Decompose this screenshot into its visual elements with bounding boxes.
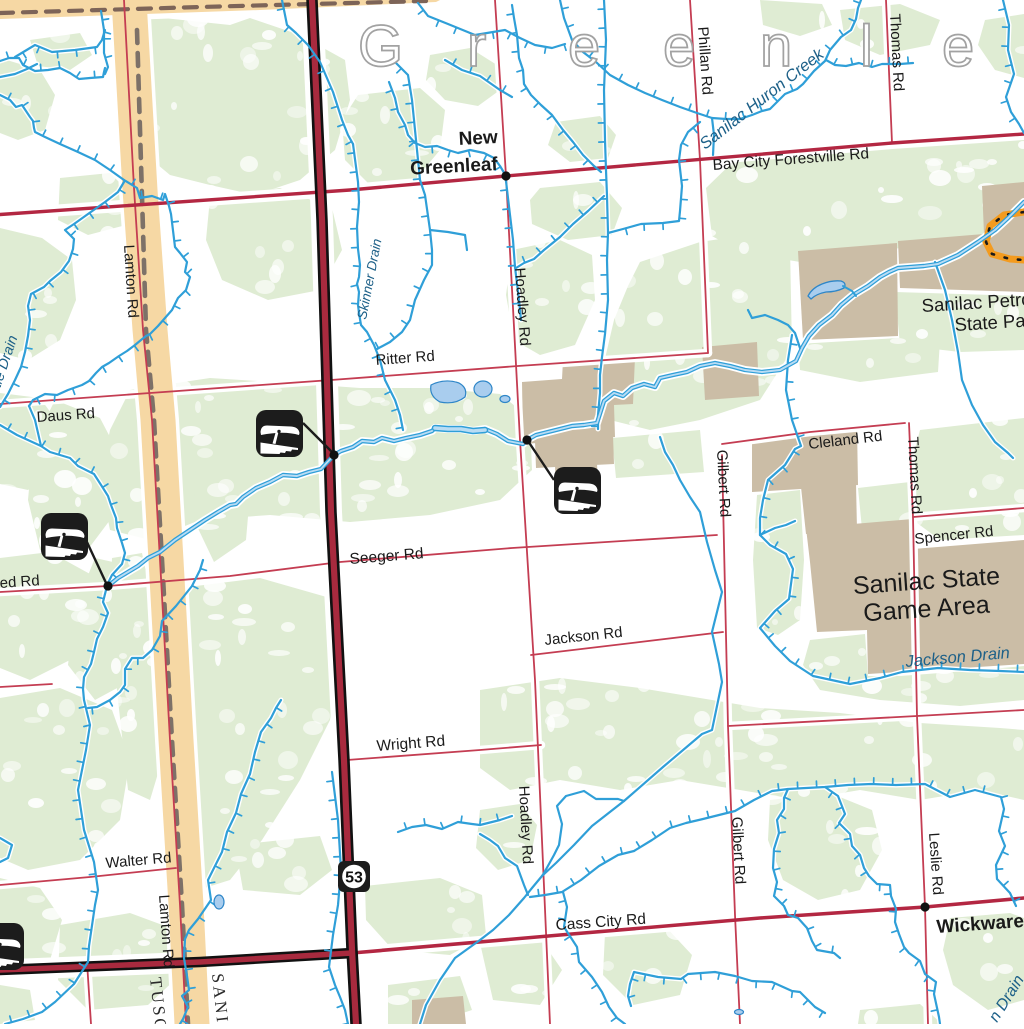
- svg-text:e: e: [568, 14, 600, 79]
- svg-text:r: r: [467, 14, 486, 79]
- svg-text:l: l: [860, 14, 873, 79]
- svg-text:G: G: [358, 14, 403, 79]
- svg-text:53: 53: [345, 870, 363, 887]
- svg-text:New: New: [458, 127, 498, 150]
- svg-text:ed Rd: ed Rd: [0, 572, 40, 592]
- svg-text:Gilbert Rd: Gilbert Rd: [713, 449, 734, 517]
- svg-text:e: e: [942, 14, 974, 79]
- svg-text:e: e: [663, 14, 695, 79]
- svg-text:State Park: State Park: [954, 309, 1024, 335]
- svg-text:Gilbert Rd: Gilbert Rd: [728, 816, 749, 884]
